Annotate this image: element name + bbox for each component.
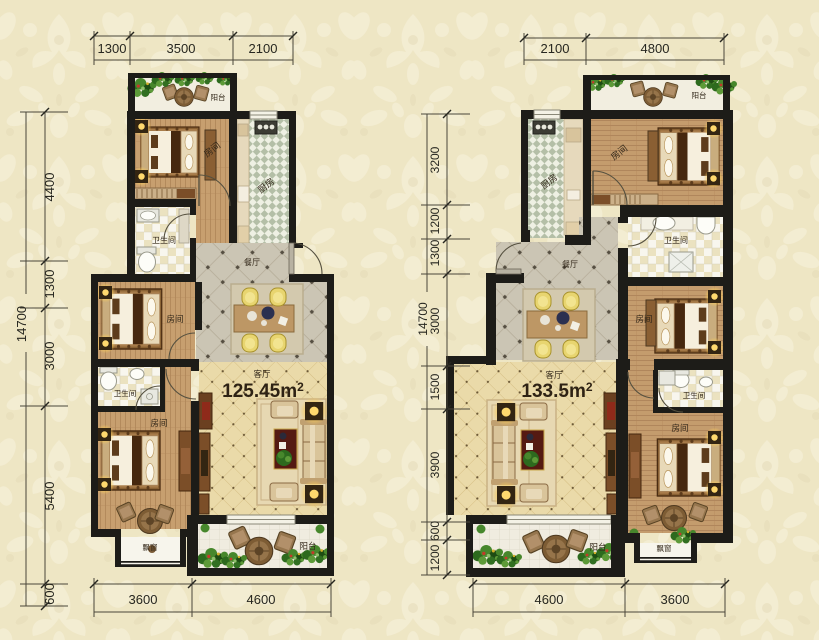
svg-text:餐厅: 餐厅 — [562, 260, 578, 269]
svg-text:1200: 1200 — [428, 207, 442, 234]
svg-text:卫生间: 卫生间 — [114, 388, 137, 398]
svg-text:3600: 3600 — [661, 592, 690, 607]
svg-text:2100: 2100 — [249, 41, 278, 56]
svg-text:房间: 房间 — [150, 418, 167, 428]
svg-text:600: 600 — [428, 521, 442, 541]
svg-text:1300: 1300 — [428, 239, 442, 266]
svg-text:卫生间: 卫生间 — [664, 235, 688, 245]
svg-text:阳台: 阳台 — [589, 542, 606, 552]
svg-text:2100: 2100 — [541, 41, 570, 56]
svg-text:卫生间: 卫生间 — [683, 390, 706, 400]
svg-text:4400: 4400 — [42, 173, 57, 202]
svg-text:3000: 3000 — [428, 307, 442, 334]
svg-text:4600: 4600 — [247, 592, 276, 607]
svg-text:125.45m2: 125.45m2 — [222, 380, 304, 402]
svg-text:3500: 3500 — [167, 41, 196, 56]
svg-text:3200: 3200 — [428, 146, 442, 173]
svg-text:1200: 1200 — [428, 544, 442, 571]
svg-text:房间: 房间 — [671, 423, 688, 433]
svg-text:飘窗: 飘窗 — [657, 543, 672, 553]
svg-text:餐厅: 餐厅 — [244, 258, 260, 267]
svg-text:4800: 4800 — [641, 41, 670, 56]
svg-text:房间: 房间 — [166, 314, 183, 324]
svg-text:客厅: 客厅 — [545, 370, 563, 380]
svg-text:600: 600 — [42, 583, 57, 605]
svg-text:3900: 3900 — [428, 451, 442, 478]
svg-text:3000: 3000 — [42, 342, 57, 371]
svg-text:1500: 1500 — [428, 373, 442, 400]
svg-text:阳台: 阳台 — [692, 90, 707, 100]
svg-text:14700: 14700 — [416, 302, 430, 336]
svg-text:飘窗: 飘窗 — [143, 542, 158, 552]
svg-text:卫生间: 卫生间 — [152, 235, 176, 245]
svg-text:5400: 5400 — [42, 482, 57, 511]
svg-text:阳台: 阳台 — [299, 541, 316, 551]
svg-text:14700: 14700 — [14, 306, 29, 342]
svg-text:房间: 房间 — [635, 314, 652, 324]
svg-text:3600: 3600 — [129, 592, 158, 607]
svg-text:1300: 1300 — [42, 270, 57, 299]
svg-text:133.5m2: 133.5m2 — [521, 380, 592, 402]
svg-text:4600: 4600 — [535, 592, 564, 607]
svg-text:客厅: 客厅 — [253, 369, 271, 379]
svg-text:阳台: 阳台 — [211, 92, 226, 102]
svg-text:1300: 1300 — [98, 41, 127, 56]
